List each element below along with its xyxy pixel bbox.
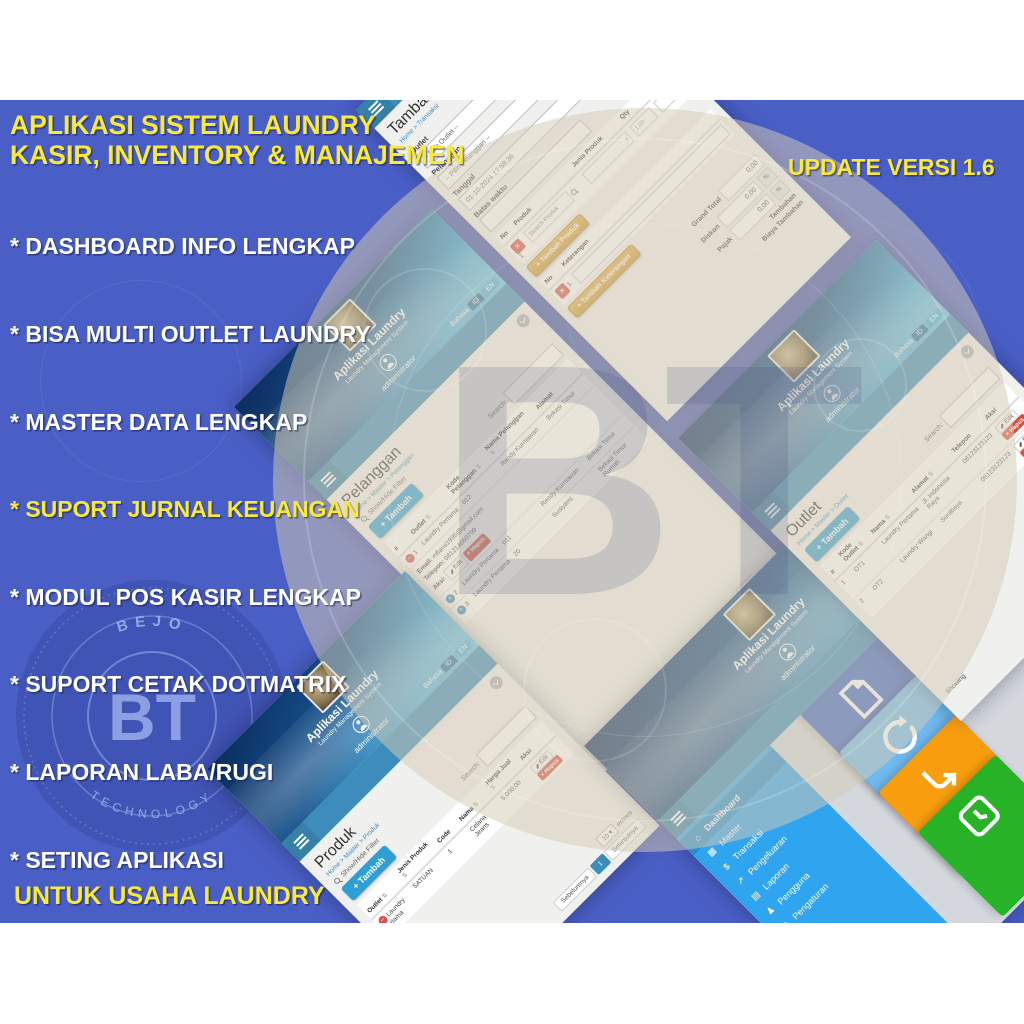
feature-item: * BISA MULTI OUTLET LAUNDRY — [10, 320, 371, 349]
sort-icon: ⇅ — [425, 514, 433, 522]
row-number: 1 — [518, 252, 526, 260]
feature-item: * SETING APLIKASI — [10, 846, 371, 875]
poster-footer-text: UNTUK USAHA LAUNDRY — [14, 882, 325, 911]
update-version-badge: UPDATE VERSI 1.6 — [788, 154, 995, 181]
feature-list: * DASHBOARD INFO LENGKAP * BISA MULTI OU… — [10, 174, 371, 923]
row-total-value — [653, 100, 686, 113]
aksi-label: Aksi: — [432, 575, 448, 591]
gear-icon: ⊛ — [778, 918, 794, 923]
sort-icon: ⇅ — [475, 463, 483, 471]
sort-icon: ⇅ — [381, 892, 389, 900]
pencil-icon — [451, 570, 453, 575]
search-label: Search: — [460, 761, 482, 783]
sort-icon: ⇅ — [402, 872, 410, 880]
search-label: Search: — [923, 422, 945, 444]
dashboard-icon: ⌂ — [690, 830, 705, 845]
search-label: Search: — [487, 399, 509, 421]
pencil-icon — [537, 764, 539, 769]
headline-line2: KASIR, INVENTORY & MANAJEMEN — [10, 140, 465, 170]
promo-poster: BEJO TECHNOLOGY BT Tambah Home > Transak… — [0, 0, 1024, 1024]
remove-row-button close-icon[interactable]: × — [509, 238, 526, 255]
dollar-icon: $ — [719, 859, 734, 874]
poster-headline: APLIKASI SISTEM LAUNDRY KASIR, INVENTORY… — [10, 110, 465, 170]
pencil-icon — [1002, 424, 1004, 429]
grid-icon: ▦ — [704, 844, 720, 860]
feature-item: * SUPORT CETAK DOTMATRIX — [10, 670, 371, 699]
export-icon: ↗ — [733, 873, 749, 889]
sort-icon: ⇅ — [928, 471, 936, 479]
pencil-icon — [1020, 442, 1022, 447]
feature-item: * DASHBOARD INFO LENGKAP — [10, 232, 371, 261]
feature-item: * SUPORT JURNAL KEUANGAN — [10, 495, 371, 524]
blue-background: BEJO TECHNOLOGY BT Tambah Home > Transak… — [0, 100, 1024, 923]
user-icon: ♟ — [763, 903, 779, 919]
sort-icon: ⇅ — [490, 784, 498, 792]
clock-icon — [948, 785, 1010, 847]
pajak-label: Pajak — [716, 236, 734, 254]
report-icon: ▤ — [748, 888, 764, 904]
row-number: 1 — [566, 281, 574, 289]
sort-icon: ⇅ — [489, 449, 497, 457]
sort-icon: ⇅ — [884, 514, 892, 522]
feature-item: * LAPORAN LABA/RUGI — [10, 758, 371, 787]
headline-line1: APLIKASI SISTEM LAUNDRY — [10, 110, 465, 140]
feature-item: * MASTER DATA LENGKAP — [10, 408, 371, 437]
feature-item: * MODUL POS KASIR LENGKAP — [10, 583, 371, 612]
sort-icon: ⇅ — [473, 801, 481, 809]
sort-icon: ⇅ — [857, 541, 865, 549]
